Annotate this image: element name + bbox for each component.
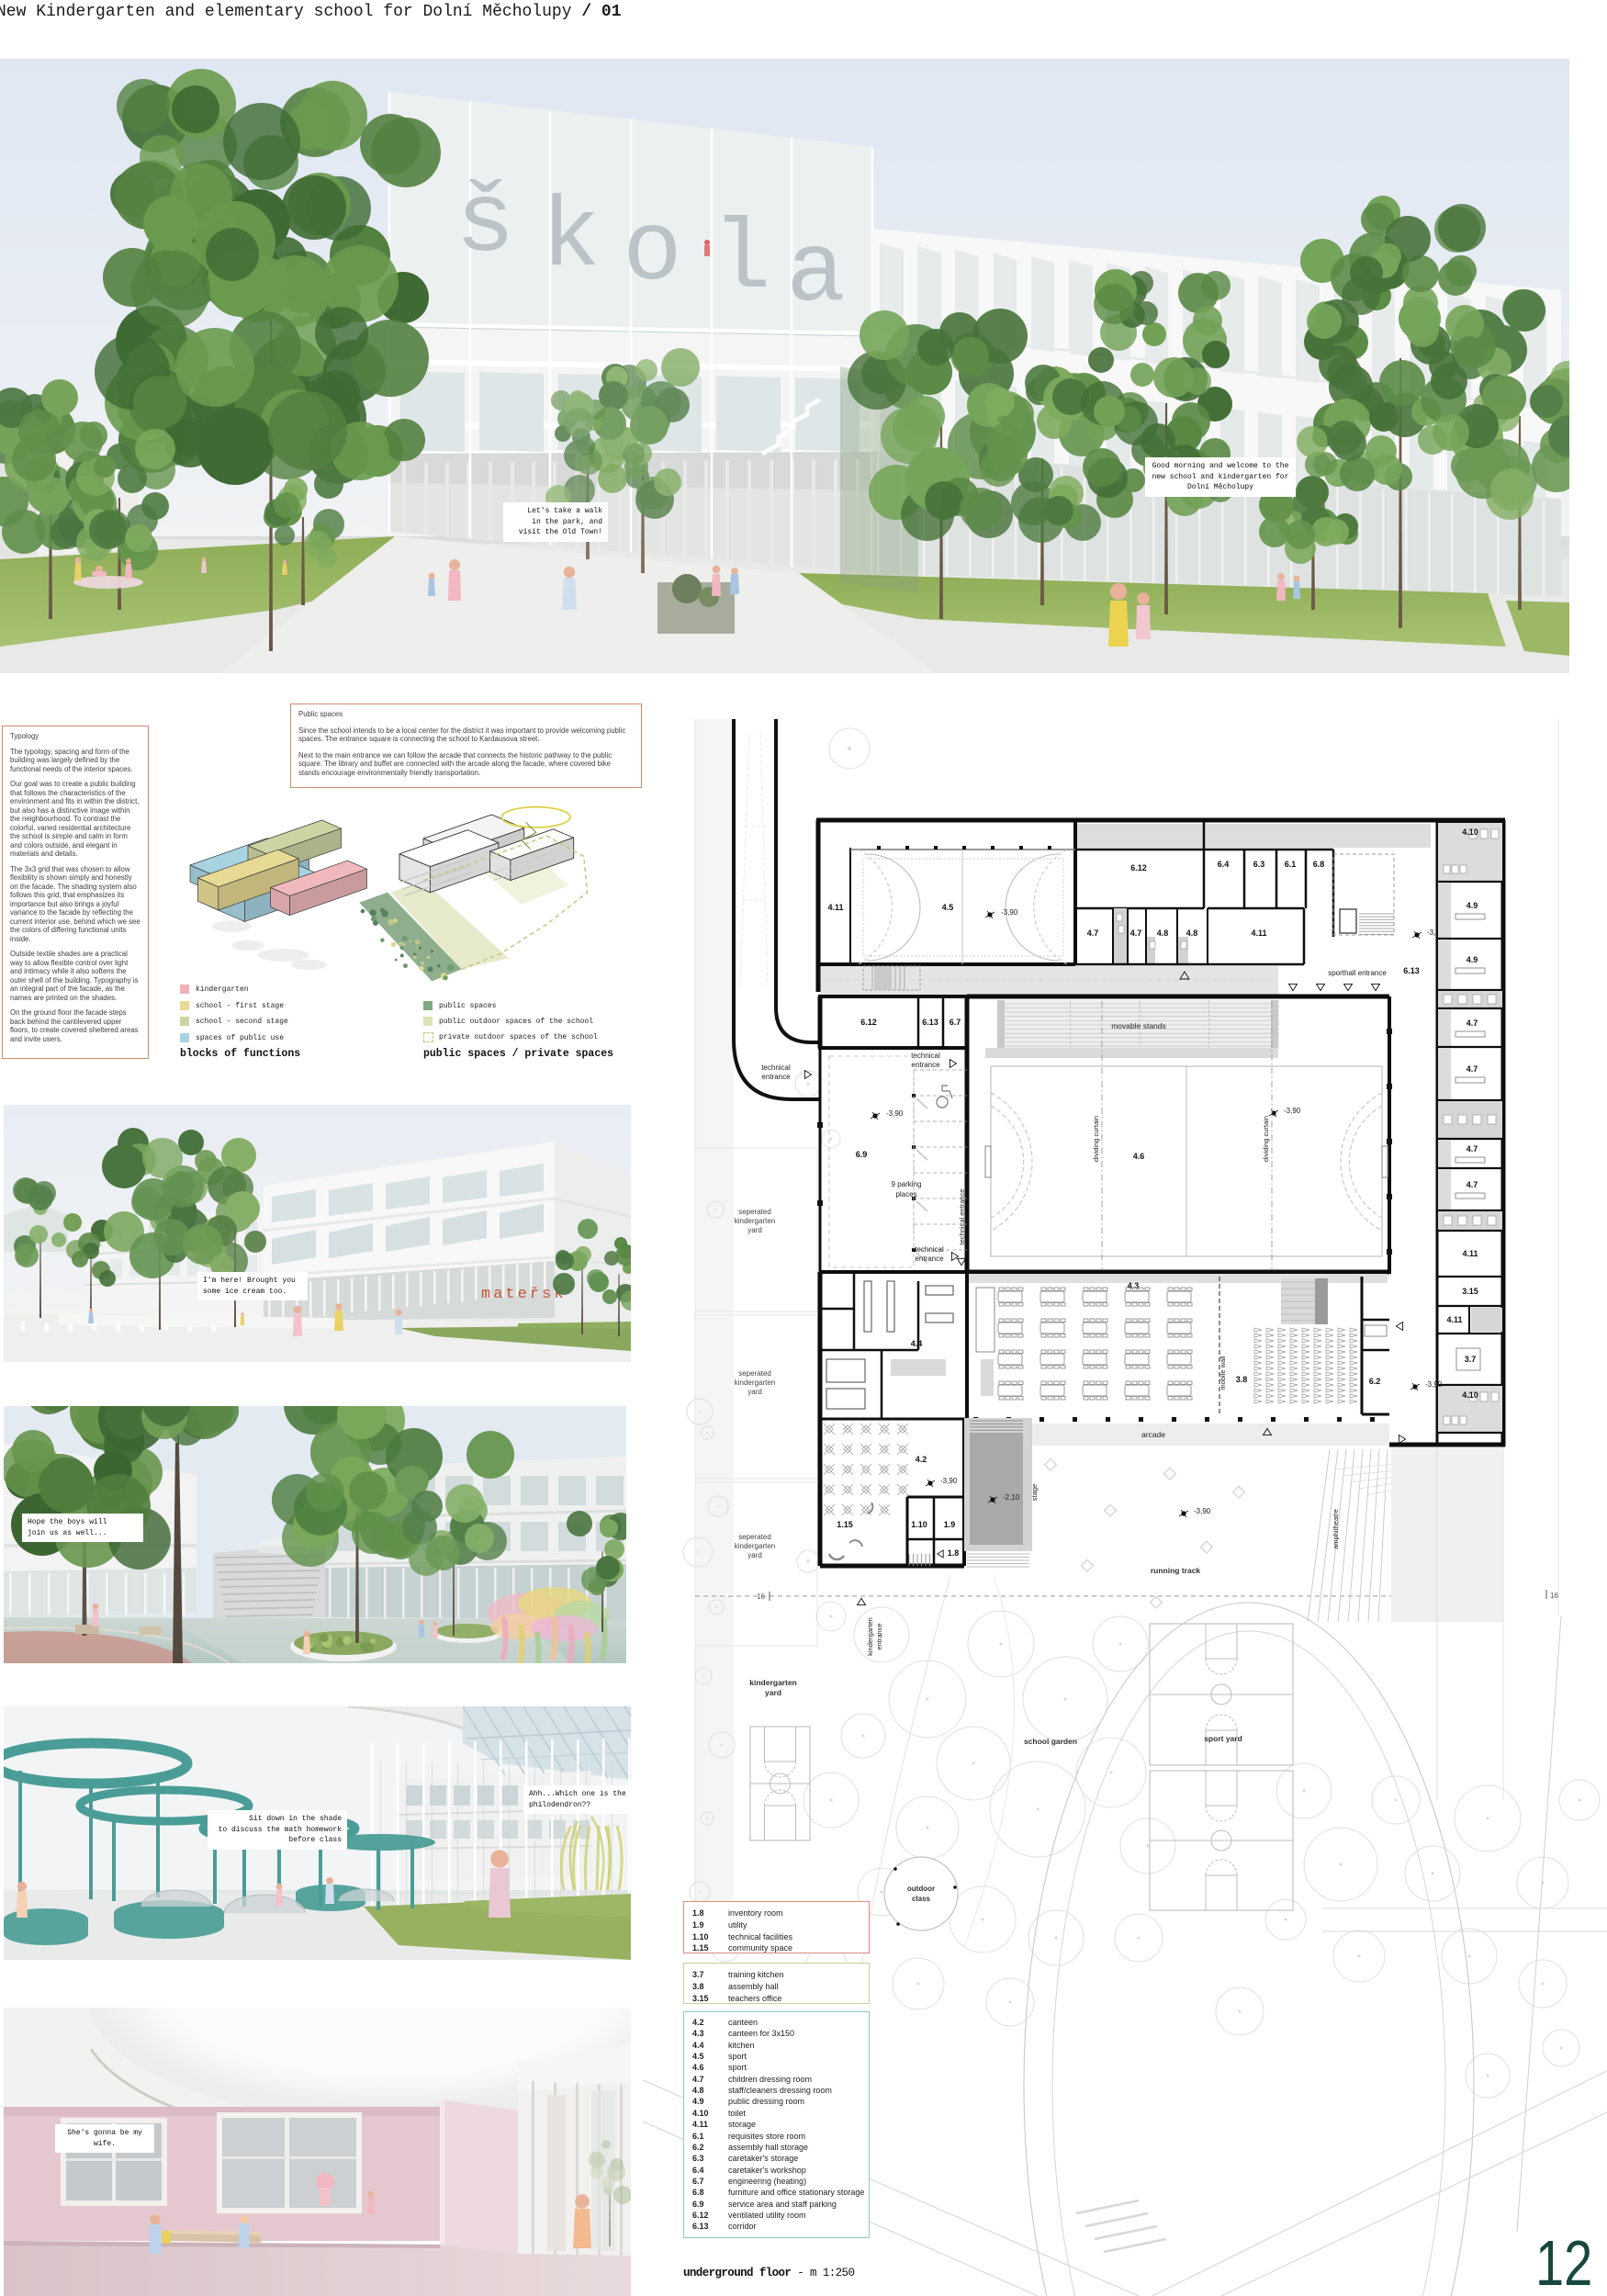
- svg-text:4.7: 4.7: [1467, 1144, 1478, 1154]
- svg-text:stage: stage: [1030, 1484, 1039, 1501]
- svg-text:6.3: 6.3: [1253, 860, 1265, 869]
- svg-text:outdoor: outdoor: [907, 1885, 935, 1893]
- svg-text:yard: yard: [747, 1388, 762, 1396]
- svg-text:kindergarten: kindergarten: [735, 1542, 775, 1550]
- svg-text:4.10: 4.10: [1462, 827, 1478, 837]
- svg-text:-3,90: -3,90: [1284, 1107, 1301, 1115]
- svg-text:4.7: 4.7: [1467, 1064, 1478, 1074]
- svg-text:school garden: school garden: [1024, 1737, 1077, 1746]
- svg-text:4.6: 4.6: [1133, 1152, 1145, 1161]
- svg-text:o: o: [623, 197, 682, 309]
- svg-text:seperated: seperated: [738, 1369, 771, 1378]
- svg-text:technical: technical: [915, 1245, 944, 1254]
- svg-text:-3,90: -3,90: [940, 1477, 958, 1485]
- svg-text:3.7: 3.7: [1465, 1355, 1477, 1364]
- svg-text:6.12: 6.12: [860, 1018, 877, 1027]
- svg-text:sport yard: sport yard: [1204, 1734, 1242, 1743]
- svg-text:4.7: 4.7: [1467, 1019, 1478, 1028]
- svg-text:4.11: 4.11: [1462, 1249, 1478, 1258]
- svg-text:yard: yard: [765, 1688, 781, 1697]
- svg-text:4.2: 4.2: [916, 1455, 927, 1464]
- svg-text:entrance: entrance: [911, 1061, 940, 1069]
- svg-text:16: 16: [1550, 1592, 1558, 1600]
- svg-text:4.8: 4.8: [1186, 929, 1198, 938]
- svg-text:4.9: 4.9: [1467, 901, 1478, 910]
- svg-text:4.4: 4.4: [911, 1339, 923, 1348]
- svg-text:movable stands: movable stands: [1111, 1021, 1166, 1030]
- svg-text:arcade: arcade: [1141, 1430, 1165, 1439]
- svg-text:6.9: 6.9: [856, 1150, 868, 1159]
- svg-text:seperated: seperated: [738, 1208, 771, 1216]
- svg-text:yard: yard: [747, 1551, 762, 1559]
- svg-text:4.7: 4.7: [1467, 1180, 1478, 1189]
- svg-text:mobile wall: mobile wall: [1219, 1356, 1227, 1390]
- svg-text:4.7: 4.7: [1130, 929, 1142, 938]
- svg-text:4.11: 4.11: [1251, 929, 1266, 938]
- svg-text:-3,90: -3,90: [1001, 908, 1018, 917]
- svg-text:9 parking: 9 parking: [892, 1180, 922, 1188]
- svg-text:1.10: 1.10: [911, 1520, 927, 1529]
- svg-text:4.11: 4.11: [1446, 1315, 1462, 1324]
- svg-text:4.8: 4.8: [1157, 929, 1169, 938]
- svg-text:-3,90: -3,90: [1425, 1380, 1443, 1389]
- svg-text:entrance: entrance: [915, 1255, 944, 1263]
- svg-text:technical: technical: [761, 1064, 791, 1072]
- svg-text:4.10: 4.10: [1462, 1390, 1478, 1400]
- svg-text:sporthall entrance: sporthall entrance: [1328, 969, 1387, 977]
- svg-text:6.8: 6.8: [1313, 860, 1325, 869]
- svg-text:yard: yard: [747, 1226, 762, 1234]
- svg-text:š: š: [455, 168, 515, 280]
- svg-text:entrance: entrance: [761, 1073, 791, 1081]
- svg-text:mateřsk: mateřsk: [481, 1286, 566, 1303]
- svg-text:-3,90: -3,90: [886, 1109, 904, 1118]
- svg-text:1.9: 1.9: [944, 1520, 956, 1529]
- svg-text:4.9: 4.9: [1467, 955, 1478, 964]
- svg-text:k: k: [541, 183, 601, 295]
- svg-text:16: 16: [757, 1593, 765, 1601]
- svg-text:6.7: 6.7: [950, 1018, 961, 1027]
- svg-text:6.13: 6.13: [1403, 966, 1420, 975]
- svg-text:6.1: 6.1: [1285, 860, 1297, 869]
- svg-text:amphitheatre: amphitheatre: [1332, 1509, 1340, 1549]
- svg-text:1.15: 1.15: [837, 1520, 853, 1529]
- svg-text:-3,90: -3,90: [1194, 1507, 1211, 1515]
- svg-text:a: a: [786, 218, 846, 330]
- svg-text:kindergarten: kindergarten: [735, 1379, 775, 1387]
- svg-text:4.7: 4.7: [1087, 929, 1099, 938]
- svg-text:seperated: seperated: [738, 1533, 771, 1541]
- svg-text:class: class: [912, 1895, 931, 1903]
- svg-text:technical: technical: [911, 1052, 940, 1060]
- svg-text:l: l: [712, 205, 771, 317]
- svg-text:kindergarten: kindergarten: [749, 1678, 797, 1687]
- svg-text:4.5: 4.5: [942, 903, 954, 912]
- svg-text:6.13: 6.13: [922, 1018, 938, 1027]
- svg-text:6.2: 6.2: [1369, 1377, 1381, 1386]
- svg-text:kindergarten: kindergarten: [866, 1617, 874, 1656]
- svg-text:3.15: 3.15: [1462, 1287, 1478, 1296]
- svg-text:4.11: 4.11: [827, 903, 843, 912]
- svg-text:dividing curtain: dividing curtain: [1092, 1116, 1100, 1162]
- svg-text:6.4: 6.4: [1218, 860, 1230, 869]
- svg-text:technical entrance: technical entrance: [958, 1189, 966, 1245]
- svg-text:dividing curtain: dividing curtain: [1262, 1116, 1270, 1162]
- svg-text:-2,10: -2,10: [1003, 1493, 1020, 1502]
- svg-text:3.8: 3.8: [1236, 1375, 1248, 1384]
- svg-text:entrance: entrance: [875, 1623, 883, 1649]
- svg-text:running track: running track: [1151, 1566, 1201, 1575]
- svg-text:1.8: 1.8: [948, 1548, 960, 1558]
- svg-text:6.12: 6.12: [1130, 863, 1147, 872]
- svg-text:kindergarten: kindergarten: [735, 1217, 775, 1225]
